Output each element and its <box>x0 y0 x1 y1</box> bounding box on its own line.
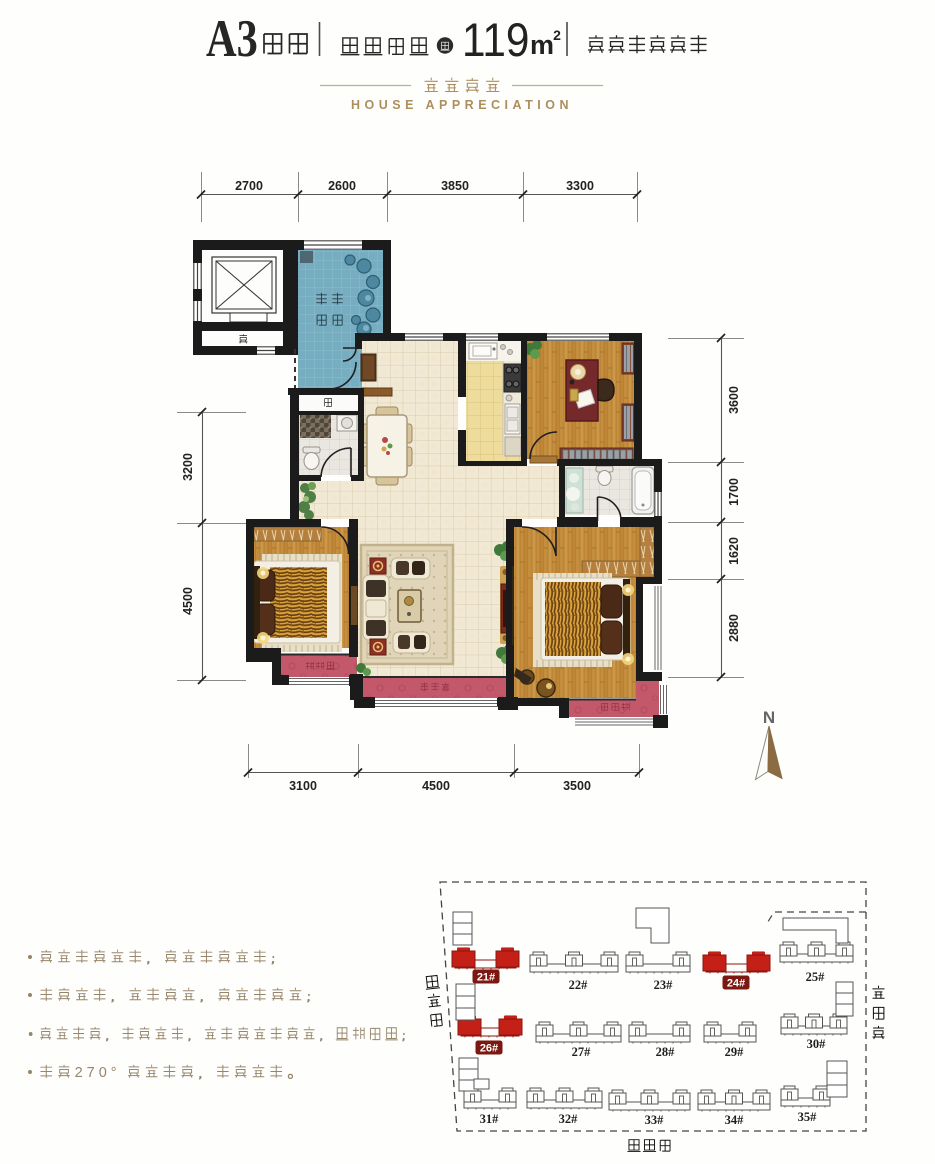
svg-text:26#: 26# <box>480 1043 498 1055</box>
svg-text:1700: 1700 <box>727 478 741 506</box>
svg-text:3300: 3300 <box>566 179 594 193</box>
svg-text:29#: 29# <box>725 1045 745 1059</box>
svg-text:31#: 31# <box>480 1112 500 1126</box>
svg-text:4500: 4500 <box>181 587 195 615</box>
svg-text:2600: 2600 <box>328 179 356 193</box>
svg-text:119: 119 <box>462 15 529 67</box>
svg-text:3850: 3850 <box>441 179 469 193</box>
svg-text:2700: 2700 <box>235 179 263 193</box>
svg-text:m: m <box>530 30 554 60</box>
svg-text:33#: 33# <box>645 1113 665 1127</box>
svg-text:24#: 24# <box>727 978 745 990</box>
svg-text:3100: 3100 <box>289 779 317 793</box>
svg-text:1620: 1620 <box>727 537 741 565</box>
svg-text:3600: 3600 <box>727 386 741 414</box>
svg-text:270°: 270° <box>75 1065 121 1081</box>
svg-text:28#: 28# <box>656 1045 676 1059</box>
svg-text:HOUSE APPRECIATION: HOUSE APPRECIATION <box>351 98 573 112</box>
svg-text:2880: 2880 <box>727 614 741 642</box>
svg-text:A3: A3 <box>206 10 258 69</box>
svg-text:34#: 34# <box>725 1113 745 1127</box>
svg-text:27#: 27# <box>572 1045 592 1059</box>
svg-text:35#: 35# <box>798 1110 818 1124</box>
svg-text:23#: 23# <box>654 978 674 992</box>
svg-text:30#: 30# <box>807 1037 827 1051</box>
svg-text:3500: 3500 <box>563 779 591 793</box>
svg-text:21#: 21# <box>477 972 495 984</box>
svg-text:N: N <box>763 708 775 727</box>
svg-text:25#: 25# <box>806 970 826 984</box>
svg-text:32#: 32# <box>559 1112 579 1126</box>
svg-text:22#: 22# <box>569 978 589 992</box>
svg-text:2: 2 <box>553 27 561 43</box>
svg-text:3200: 3200 <box>181 453 195 481</box>
svg-text:4500: 4500 <box>422 779 450 793</box>
